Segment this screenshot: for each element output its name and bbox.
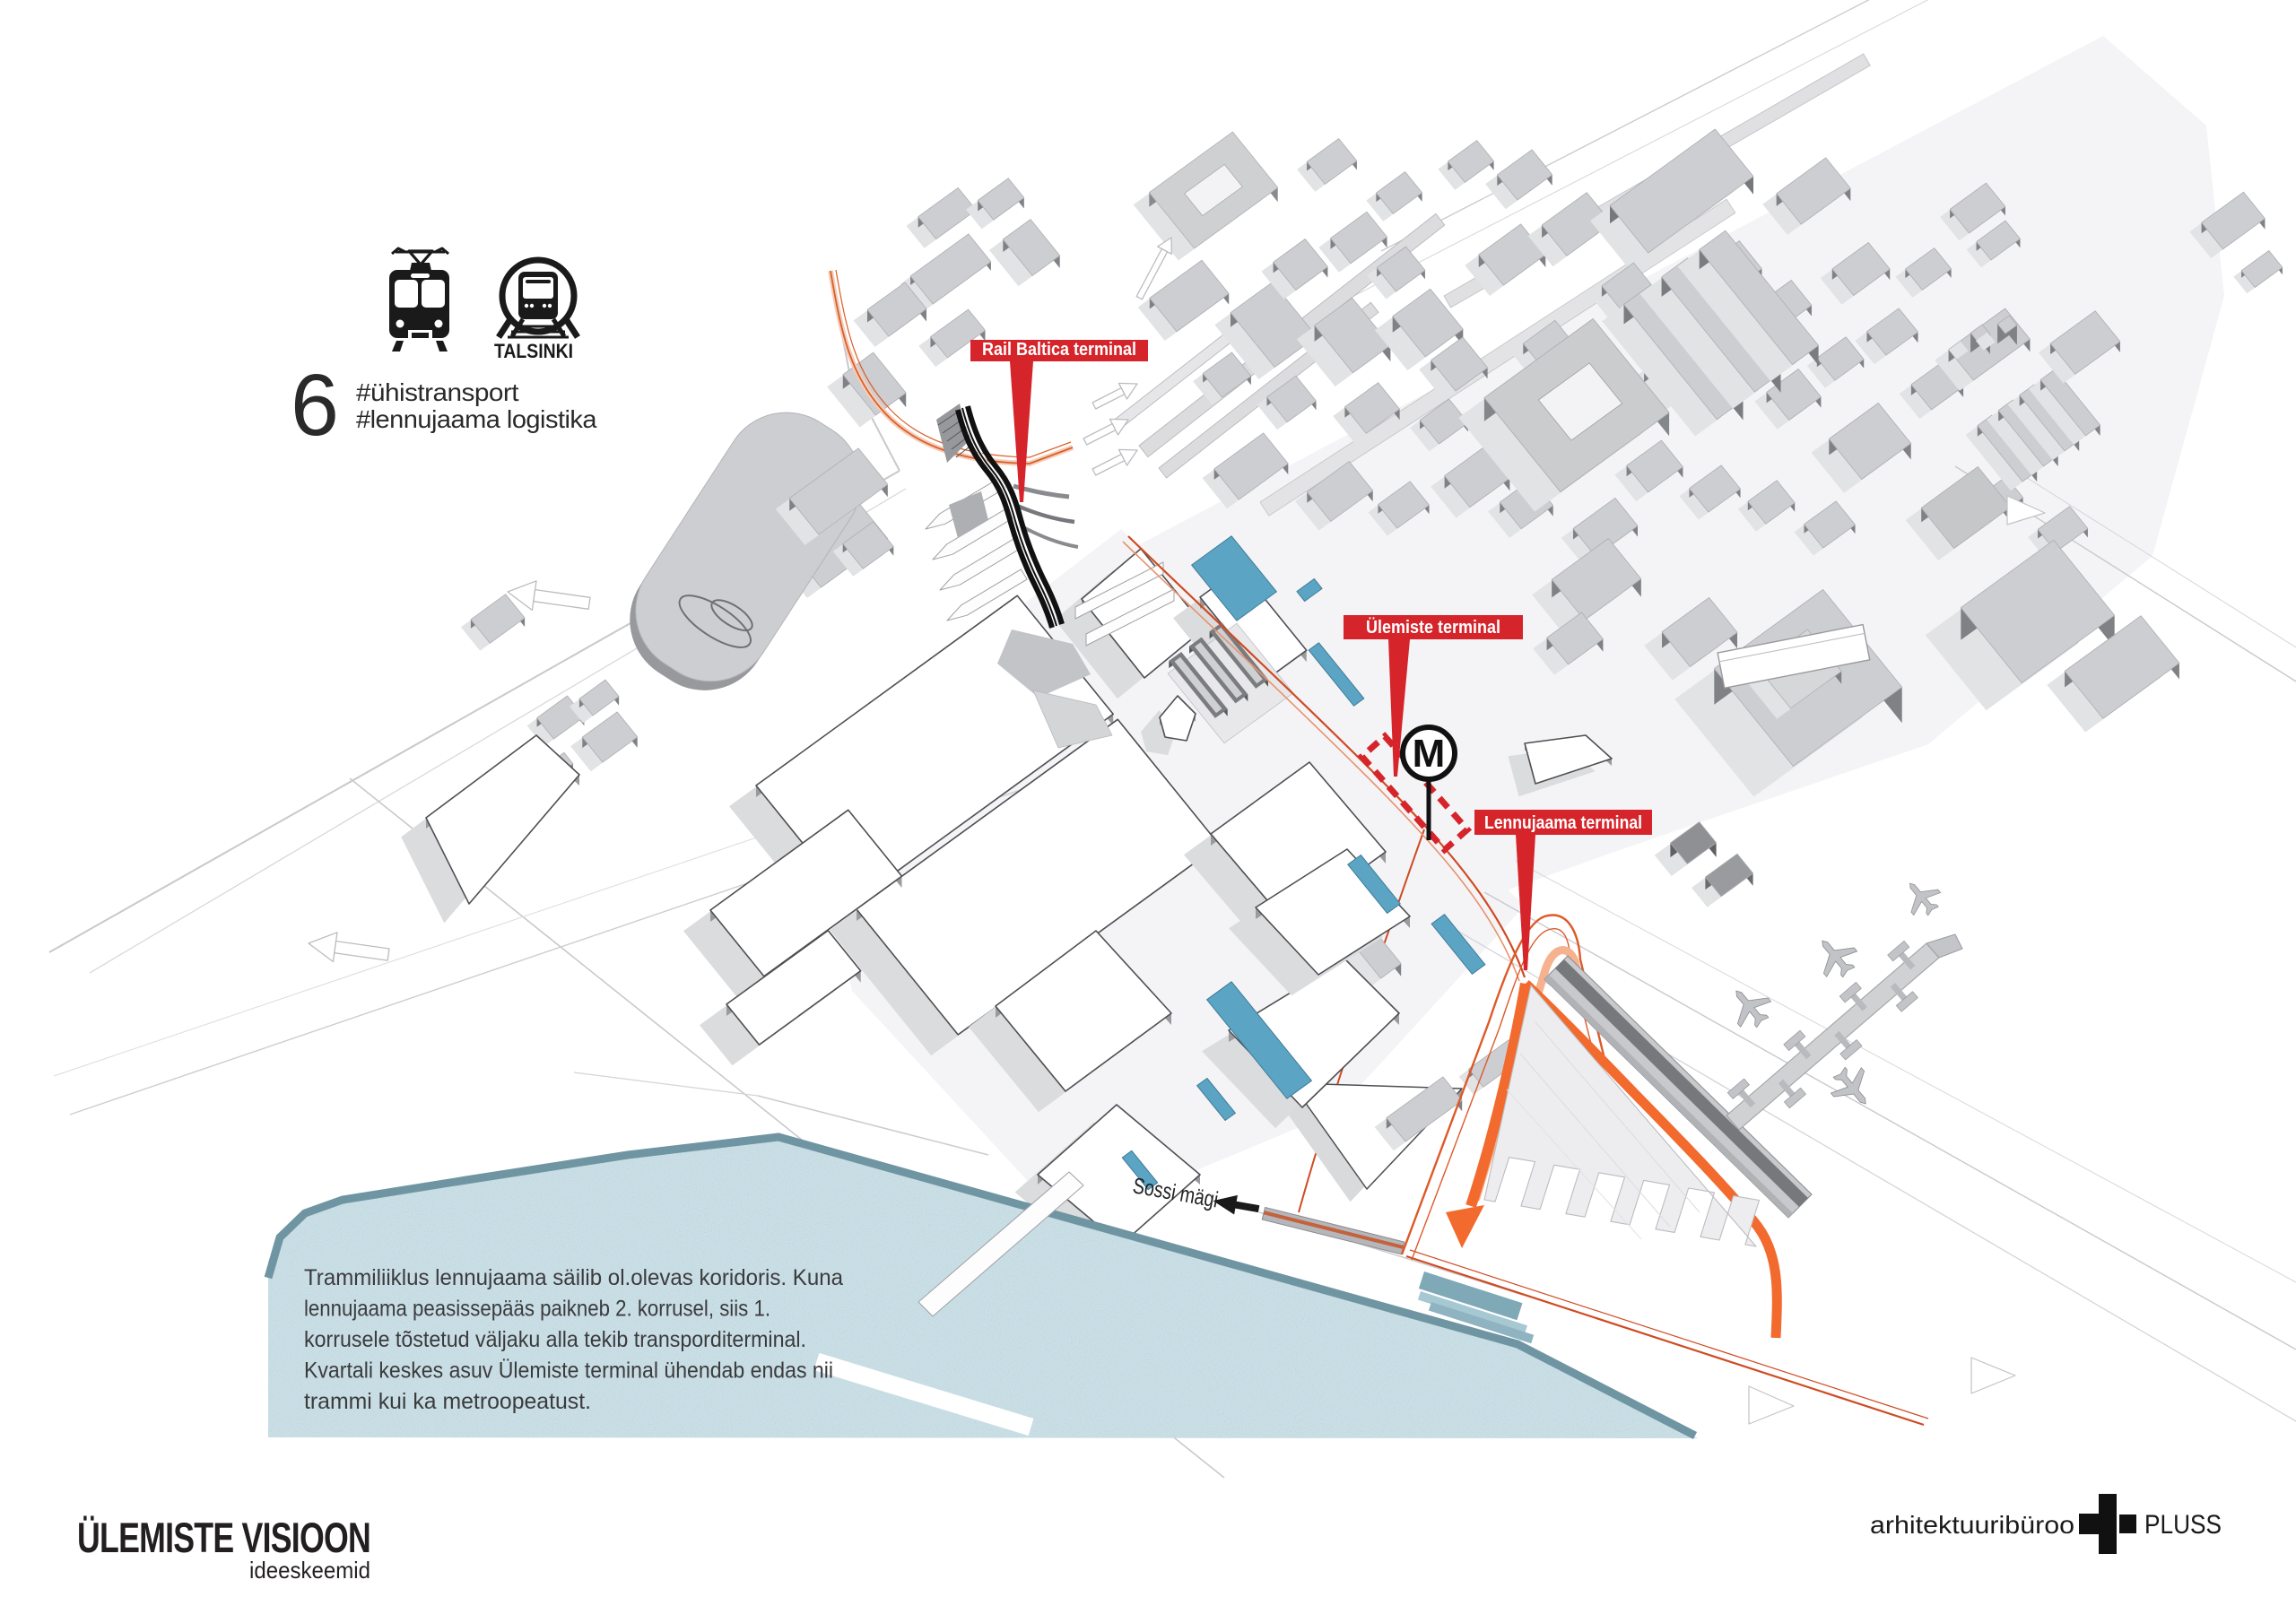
svg-text:#ühistransport: #ühistransport: [356, 378, 519, 406]
svg-text:ÜLEMISTE VISIOON: ÜLEMISTE VISIOON: [77, 1514, 370, 1561]
svg-text:Kvartali keskes asuv Ülemiste: Kvartali keskes asuv Ülemiste terminal ü…: [304, 1358, 833, 1384]
svg-text:M: M: [1413, 732, 1446, 776]
svg-text:trammi kui ka metroopeatust.: trammi kui ka metroopeatust.: [304, 1389, 591, 1414]
svg-text:lennujaama peasissepääs paikne: lennujaama peasissepääs paikneb 2. korru…: [304, 1297, 770, 1322]
svg-text:Ülemiste terminal: Ülemiste terminal: [1366, 617, 1500, 638]
svg-text:korrusele tõstetud väljaku all: korrusele tõstetud väljaku alla tekib tr…: [304, 1327, 806, 1352]
svg-text:#lennujaama logistika: #lennujaama logistika: [356, 405, 597, 433]
svg-text:TALSINKI: TALSINKI: [494, 340, 573, 362]
svg-text:Trammiliiklus lennujaama säili: Trammiliiklus lennujaama säilib ol.oleva…: [304, 1265, 843, 1290]
svg-text:Rail Baltica terminal: Rail Baltica terminal: [982, 340, 1136, 360]
svg-text:PLUSS: PLUSS: [2144, 1510, 2222, 1540]
svg-text:Lennujaama terminal: Lennujaama terminal: [1484, 813, 1642, 833]
svg-text:ideeskeemid: ideeskeemid: [249, 1557, 370, 1584]
svg-text:arhitektuuribüroo: arhitektuuribüroo: [1870, 1511, 2074, 1539]
svg-text:6: 6: [291, 356, 339, 454]
